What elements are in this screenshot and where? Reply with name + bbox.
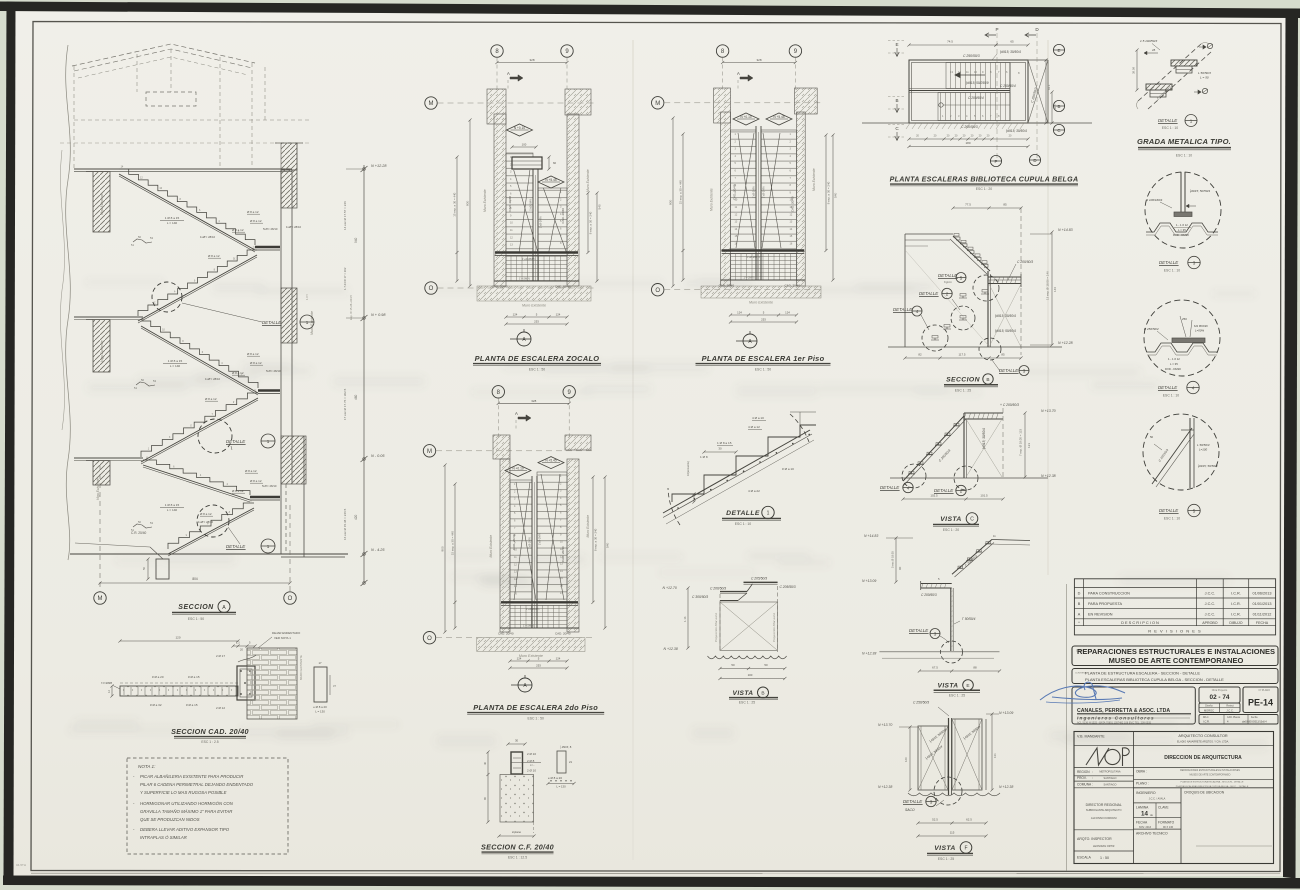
svg-text:L=...: L=... [530,764,535,767]
svg-text:63.1: 63.1 [1047,84,1051,90]
svg-text:5x8'= 28/10: 5x8'= 28/10 [263,227,278,231]
svg-text:Diseño: Diseño [1205,704,1213,707]
svg-text:J.C.C.: J.C.C. [1226,708,1233,712]
svg-text:ESC 1 : 10: ESC 1 : 10 [1163,394,1180,398]
svg-text:1 - 1 # 12: 1 - 1 # 12 [1168,357,1180,361]
svg-text:ESC 1 : 50: ESC 1 : 50 [527,717,544,721]
svg-text:1 Ø 8 a 15: 1 Ø 8 a 15 [165,503,180,507]
svg-text:Ø 8 a 12: Ø 8 a 12 [232,228,244,232]
svg-text:CAD. 20/40: CAD. 20/40 [719,284,735,288]
svg-text:DIRECTOR REGIONAL: DIRECTOR REGIONAL [1086,803,1122,807]
svg-text:L = 35: L = 35 [1170,362,1178,366]
svg-text:J.C.C.: J.C.C. [1205,592,1216,596]
svg-text:# Ø a 32: # Ø a 32 [150,703,162,707]
svg-text:ARQUITECTO CONSULTOR: ARQUITECTO CONSULTOR [1178,734,1228,738]
svg-text:124: 124 [737,311,742,315]
svg-text:ACL 5136 Nº1525 - BATA 70891: ACL 5136 Nº1525 - BATA 70891 1057482 108… [1077,720,1152,724]
svg-text:COMUNA: COMUNA [1077,783,1092,787]
svg-text:DEBERA LLEVAR ADITIVO EXPANSOR: DEBERA LLEVAR ADITIVO EXPANSOR TIPO [140,827,230,832]
svg-text:65: 65 [1010,40,1014,44]
svg-text:R E V I S I O N E S: R E V I S I O N E S [1148,629,1201,634]
svg-text:DIBUJO: DIBUJO [1229,621,1242,625]
svg-text:CAD. 20/40: CAD. 20/40 [791,196,795,212]
svg-text:ESC 1 : 50: ESC 1 : 50 [188,617,205,621]
svg-text:B: B [1078,602,1081,606]
svg-text:1.16: 1.16 [683,616,687,622]
svg-text:1 P.²: 1 P.² [305,294,309,300]
svg-text:├#915; 50/250/9: ├#915; 50/250/9 [965,81,989,85]
svg-text:E: E [895,42,898,47]
svg-text:ESC 1 : 2.5: ESC 1 : 2.5 [201,740,218,744]
svg-text:Ø 8 a 12: Ø 8 a 12 [250,219,262,223]
svg-text:1'+Ø-ØM ½: 1'+Ø-ØM ½ [747,255,761,259]
svg-text:800: 800 [669,200,673,205]
svg-text:M: M [98,596,103,602]
svg-text:# Ø a 15: # Ø a 15 [188,675,200,679]
svg-text:C 250/50/3: C 250/50/3 [913,701,929,705]
svg-text:ESCALA: ESCALA [1077,856,1091,860]
svg-text:540: 540 [606,543,610,548]
svg-text:90: 90 [898,566,902,570]
svg-text:250: 250 [1182,317,1187,321]
svg-text:CROQUIS DE UBICACION: CROQUIS DE UBICACION [1184,791,1225,795]
svg-text:A: A [1078,613,1081,617]
svg-text:SANTIAGO: SANTIAGO [1104,777,1117,780]
svg-text:1'-¹-2M ½: 1'-¹-2M ½ [519,277,531,281]
svg-text:Muro Existente: Muro Existente [586,169,590,192]
svg-text:DETALLE: DETALLE [999,368,1018,373]
svg-text:O: O [429,286,434,292]
svg-text:Ø 8 a 12: Ø 8 a 12 [205,397,217,401]
svg-text:940: 940 [354,237,358,243]
svg-text:├#915; 30/50/4: ├#915; 30/50/4 [999,50,1021,54]
svg-text:DETALLE: DETALLE [1159,508,1178,513]
svg-text:14 esc Ø 17.57 = 246: 14 esc Ø 17.57 = 246 [343,201,347,230]
svg-text:ESC 1 : 20: ESC 1 : 20 [976,187,993,191]
svg-text:ESC 1 : 12.5: ESC 1 : 12.5 [508,856,527,860]
svg-text:43.8: 43.8 [1053,104,1057,110]
svg-text:N +13.09: N +13.09 [862,579,876,583]
svg-text:DXD - DM20: DXD - DM20 [1173,233,1189,237]
svg-text:FECHA: FECHA [1256,621,1269,625]
svg-text:PLANTA DE ESCALERA 2do Pis: PLANTA DE ESCALERA 2do Piso [473,703,598,712]
svg-text:16 esc Ø 15.38 = 246.5: 16 esc Ø 15.38 = 246.5 [343,508,347,540]
svg-text:2 Ø 10: 2 Ø 10 [527,769,536,773]
svg-text:N +0.10: N +0.10 [512,467,523,471]
svg-text:INGENIERO: INGENIERO [1136,791,1156,795]
svg-text:800: 800 [441,546,445,551]
svg-text:4 Ø a 10: 4 Ø a 10 [752,416,764,420]
svg-text:REPARACIONES ESTRUCTURALES E I: REPARACIONES ESTRUCTURALES E INSTALACION… [1077,647,1275,656]
svg-text:38.08: 38.08 [1132,67,1136,74]
svg-text:120: 120 [175,636,180,640]
svg-text:N +13.09: N +13.09 [999,711,1013,715]
svg-text:253: 253 [534,320,539,324]
svg-text:PLANTA ESCALERAS BIBLIOTECA CU: PLANTA ESCALERAS BIBLIOTECA CUPULA BELGA… [1085,677,1224,682]
svg-text:50: 50 [731,663,735,667]
svg-text:L 50/50/3: L 50/50/3 [1197,443,1210,447]
svg-text:Muro Existente: Muro Existente [749,301,773,305]
svg-text:115: 115 [950,831,955,835]
svg-text:C: C [970,517,974,523]
svg-text:01/01/2013: 01/01/2013 [1252,602,1271,606]
svg-text:├#915; 30/50/4: ├#915; 30/50/4 [982,428,986,450]
svg-text:DETALLE: DETALLE [1158,118,1177,123]
svg-text:30: 30 [515,739,519,743]
svg-text:INTRAPLAS Ó SIMILAR: INTRAPLAS Ó SIMILAR [140,835,187,840]
svg-text:SECCION: SECCION [178,604,214,611]
svg-text:N +0.10: N +0.10 [740,115,751,119]
svg-text:124: 124 [785,311,790,315]
svg-text:14: 14 [1141,811,1148,818]
svg-text:VISTA: VISTA [938,683,959,690]
svg-text:DETALLE: DETALLE [226,544,245,549]
svg-text:15 esp. a 30 = 440: 15 esp. a 30 = 440 [679,180,683,204]
svg-text:253: 253 [761,318,766,322]
svg-text:LEONIDAS ORTIZ: LEONIDAS ORTIZ [1093,844,1115,848]
svg-text:L = 140: L = 140 [167,508,178,512]
svg-text:L = 130: L = 130 [556,785,566,789]
svg-text:Γ 50/50/4: Γ 50/50/4 [962,617,976,621]
svg-text:Viga Existente: Viga Existente [96,478,100,500]
svg-text:A: A [737,71,740,76]
svg-text:Ø 8 a 12: Ø 8 a 12 [208,254,220,258]
svg-text:PILAR 6 CADENA PERIMETRAL DEJA: PILAR 6 CADENA PERIMETRAL DEJANDO ENDENT… [140,782,254,787]
svg-text:V.B. MANDANTE: V.B. MANDANTE [1077,735,1105,739]
svg-text:80: 80 [483,796,487,800]
svg-text:C 200/50/4: C 200/50/4 [968,96,984,100]
svg-text:NOTA 1:: NOTA 1: [138,764,156,769]
svg-text:100: 100 [522,143,527,147]
svg-text:J.C.C.: J.C.C. [1205,613,1216,617]
svg-text:N +12.38: N +12.38 [664,647,678,651]
svg-text:1'xØ-2M½: 1'xØ-2M½ [752,186,756,199]
svg-text:DETALLE: DETALLE [880,485,899,490]
svg-text:C 205/50/3: C 205/50/3 [780,585,796,589]
svg-text:VISTA: VISTA [934,845,956,852]
svg-text:CAD. 20/40: CAD. 20/40 [508,196,512,212]
svg-text:NOV. 2013: NOV. 2013 [1139,826,1152,829]
svg-text:PARA PROPUESTA: PARA PROPUESTA [1088,602,1123,606]
svg-text:21: 21 [569,760,573,764]
svg-text:Muro Existente: Muro Existente [586,515,590,538]
svg-text:ESC 1 : 10: ESC 1 : 10 [1162,126,1179,130]
svg-text::: : [1092,770,1093,774]
svg-text:30: 30 [718,447,722,451]
svg-text:1'+Ø-ØM ½: 1'+Ø-ØM ½ [526,607,540,611]
svg-text:P: P [995,27,998,32]
svg-text:ESC 1 : 10: ESC 1 : 10 [1176,154,1193,158]
svg-text:17: 17 [318,661,322,665]
svg-text:ESC 1 : 25: ESC 1 : 25 [949,694,966,698]
svg-text:ESC 1 : 25: ESC 1 : 25 [938,857,955,861]
svg-text:CAD. 20/40: CAD. 20/40 [561,208,565,224]
svg-text:1.7.23 Ø 17 = 302: 1.7.23 Ø 17 = 302 [343,267,347,290]
svg-text:ESC 1 : 50: ESC 1 : 50 [529,368,546,372]
svg-text:DETALLE: DETALLE [934,488,953,493]
svg-text:Viga Existente: Viga Existente [100,340,104,362]
svg-text:2 Ø 10: 2 Ø 10 [527,752,536,756]
svg-text:4 Ø a 22: 4 Ø a 22 [748,489,760,493]
svg-text:N +5.45: N +5.45 [545,178,556,182]
svg-text:180: 180 [965,141,970,145]
svg-text:A: A [515,411,518,416]
svg-text:PLANTA DE ESCALERA ZOCALO: PLANTA DE ESCALERA ZOCALO [475,354,600,363]
svg-text:METROPOLITANA: METROPOLITANA [1099,771,1121,774]
svg-text:PLANO :: PLANO : [1136,782,1149,786]
svg-text:EN REVISION: EN REVISION [1088,613,1113,617]
svg-text:90 X 136: 90 X 136 [1163,826,1174,829]
svg-text:5x8'= 28/10: 5x8'= 28/10 [262,484,277,488]
svg-text:102.5: 102.5 [930,494,938,498]
svg-text:01/06/2013: 01/06/2013 [1252,592,1271,596]
svg-text:D E S C R I P C I O N: D E S C R I P C I O N [1121,620,1159,625]
svg-text:F: F [964,846,967,852]
svg-text:120: 120 [904,757,908,762]
svg-text:Muro Existente: Muro Existente [522,304,546,308]
svg-text:540: 540 [598,204,602,209]
svg-text:HORMIGONAR UTILIZANDO HORMIGÓN: HORMIGONAR UTILIZANDO HORMIGÓN CON [140,801,234,806]
svg-text:Ø 8 a 12: Ø 8 a 12 [232,371,244,375]
svg-text:DIRECCION DE ARQUITECTURA: DIRECCION DE ARQUITECTURA [1164,755,1242,761]
svg-text:ESC 1 : 10: ESC 1 : 10 [1164,517,1181,521]
svg-text:O: O [427,636,432,642]
svg-text:N + 0.98: N + 0.98 [371,313,386,317]
svg-text:VISTA: VISTA [733,690,754,697]
svg-text:├#915; 30/50/4: ├#915; 30/50/4 [994,314,1016,318]
svg-text:ESC 1 : 20: ESC 1 : 20 [943,528,960,532]
svg-text:SUBROGANTE ARQUITECTO: SUBROGANTE ARQUITECTO [1086,808,1122,812]
svg-text:B: B [895,98,898,103]
svg-text:M: M [429,101,434,107]
svg-text:OBRA :: OBRA : [1136,770,1147,774]
svg-text:SACO: SACO [905,808,915,812]
svg-text:540: 540 [834,193,838,198]
svg-text:01/11/2012: 01/11/2012 [1253,613,1272,617]
svg-text:├#915; 30/50/4: ├#915; 30/50/4 [1005,129,1027,133]
svg-text:I.C.R.: I.C.R. [1231,613,1241,617]
svg-text:M1 BOND: M1 BOND [1194,324,1209,328]
svg-text:MUSEO DE ARTE CONTEMPORANEO: MUSEO DE ARTE CONTEMPORANEO [1190,774,1231,777]
svg-text:15 esp. a 30 = 440: 15 esp. a 30 = 440 [451,531,455,555]
svg-text:s/plano: s/plano [512,830,522,834]
svg-text:Muro Existente: Muro Existente [310,311,314,335]
svg-text:N +12.38: N +12.38 [878,785,892,789]
svg-text:ARQTO. INSPECTOR: ARQTO. INSPECTOR [1077,837,1112,841]
svg-text:1'xØ-2M½: 1'xØ-2M½ [539,216,543,229]
svg-text:N - 0.05: N - 0.05 [371,454,385,458]
svg-text:├#915; 50/50/4: ├#915; 50/50/4 [1189,189,1210,193]
svg-text:CLAVE: CLAVE [1158,806,1169,810]
svg-text:e Ø 8 a 20: e Ø 8 a 20 [548,776,562,780]
svg-text:e Ø 8 a 20: e Ø 8 a 20 [313,705,327,709]
svg-text:50: 50 [1150,435,1154,439]
svg-text:DXD - DM20: DXD - DM20 [1165,367,1181,371]
svg-text:Muro Existente: Muro Existente [710,188,714,211]
svg-text:C 200/50/3: C 200/50/3 [710,587,726,591]
svg-text:ESC 1 : 25: ESC 1 : 25 [739,701,756,705]
svg-text:I.C.R.: I.C.R. [1231,592,1241,596]
svg-text:Muro Existente: Muro Existente [812,168,816,191]
svg-text:CAD. Planos: CAD. Planos [1227,716,1241,719]
svg-text:5 esc Ø 18.05: 5 esc Ø 18.05 [891,551,895,568]
svg-text:ESC 1 : 10: ESC 1 : 10 [1164,269,1181,273]
svg-text:124: 124 [556,313,561,317]
svg-text:# Ø a 15: # Ø a 15 [186,703,198,707]
svg-text:├#915; 8: ├#915; 8 [560,745,572,749]
svg-text:DETALLE: DETALLE [1159,260,1178,265]
svg-text:PLANTA ESCALERAS BIBLIOTECA CU: PLANTA ESCALERAS BIBLIOTECA CUPULA BELGA… [1176,785,1249,788]
svg-text:253: 253 [536,664,541,668]
svg-text:131: 131 [993,753,997,758]
svg-text:460: 460 [354,394,358,400]
svg-text:E: E [966,683,969,689]
svg-text:60: 60 [553,161,557,165]
svg-text:50: 50 [142,566,146,570]
svg-text:# Ø a 10: # Ø a 10 [782,467,794,471]
svg-text:1'xØ-2M½: 1'xØ-2M½ [538,532,542,545]
svg-text:A: A [507,71,510,76]
svg-text:77.5: 77.5 [965,203,971,207]
svg-text:124: 124 [556,657,561,661]
svg-text:Ø 8 a 12: Ø 8 a 12 [232,489,244,493]
svg-text:C 205/50/3: C 205/50/3 [751,577,767,581]
svg-text:CAD. 20/40: CAD. 20/40 [492,285,508,289]
svg-text:Ø 8 a 12: Ø 8 a 12 [247,210,259,214]
svg-text:N +12.28: N +12.28 [371,164,387,168]
svg-text:124: 124 [517,657,522,661]
svg-text:QUE SE PRODUZCAN NIDOS: QUE SE PRODUZCAN NIDOS [140,817,200,822]
svg-text:Muro Existente: Muro Existente [483,189,487,212]
svg-text:VER NOTA 1: VER NOTA 1 [274,636,291,640]
svg-text:ESC 1 : 10: ESC 1 : 10 [735,522,752,526]
svg-text:1'xØ-2M½: 1'xØ-2M½ [762,186,766,199]
svg-text:A: A [222,605,226,611]
svg-text:L = 35: L = 35 [1178,228,1186,232]
svg-text:Ø 8 a 12: Ø 8 a 12 [200,512,212,516]
svg-text:328: 328 [531,399,536,403]
svg-text:N +12.28: N +12.28 [1058,341,1073,345]
svg-text:CAD. 20/40: CAD. 20/40 [555,285,571,289]
svg-text:146: 146 [1053,287,1057,292]
svg-text:VISTA: VISTA [940,516,962,523]
svg-text:J.C.C. / AYALA: J.C.C. / AYALA [1149,798,1166,801]
svg-text:PLANTA DE ESCALERA 1er Pis: PLANTA DE ESCALERA 1er Piso [702,354,825,363]
svg-text:SECCION CAD. 20/40: SECCION CAD. 20/40 [171,727,249,736]
svg-text:N +13.70: N +13.70 [1041,409,1056,413]
svg-text:52.5: 52.5 [932,818,938,822]
svg-text:02 - 74: 02 - 74 [1210,694,1230,701]
svg-text:88: 88 [973,666,977,670]
svg-text:PARA CONSTRUCCION: PARA CONSTRUCCION [1088,592,1130,596]
svg-text:Proyeccion Pilar exist.: Proyeccion Pilar exist. [772,612,776,642]
svg-text:M: M [655,101,660,107]
svg-text:DETALLE: DETALLE [938,273,957,278]
svg-text:2 Ø 17: 2 Ø 17 [216,654,225,658]
svg-text:MUSEO DE ARTE CONTEMPORANEO: MUSEO DE ARTE CONTEMPORANEO [1109,656,1244,665]
svg-text:L=50%: L=50% [1195,329,1205,333]
svg-text:7 esp. Ø 18.05 = 123: 7 esp. Ø 18.05 = 123 [1019,429,1023,456]
svg-text:B: B [986,377,989,383]
svg-text:N +12.38: N +12.38 [1041,474,1056,478]
svg-text:ESC 1 : 50: ESC 1 : 50 [755,368,772,372]
svg-text:I.C.R.: I.C.R. [1203,720,1210,724]
svg-text:DETALLE: DETALLE [226,439,245,444]
svg-text:1 Ø 8 a 15: 1 Ø 8 a 15 [717,441,732,445]
svg-text:PE-14: PE-14 [1248,698,1273,708]
svg-text:1 Ø 8: 1 Ø 8 [700,455,708,459]
svg-text:C 300/50/3: C 300/50/3 [692,595,708,599]
svg-text:04-5TH: 04-5TH [16,863,26,867]
svg-text:CAD. 20/40: CAD. 20/40 [498,632,514,636]
svg-text:1 Ø 8 a 15: 1 Ø 8 a 15 [165,216,180,220]
svg-text:C 200/50/3: C 200/50/3 [961,125,978,129]
svg-text:74.5: 74.5 [947,40,953,44]
svg-text:L=100: L=100 [1199,448,1208,452]
svg-text:100: 100 [748,673,753,677]
svg-text:8 esp. a 30 = 240: 8 esp. a 30 = 240 [594,528,598,551]
svg-text:B: B [761,691,764,697]
svg-text:1xØ'= 28/10: 1xØ'= 28/10 [198,520,214,524]
svg-text:Esp. Ø 15.28+344.5: Esp. Ø 15.28+344.5 [349,295,353,320]
svg-text:D: D [1078,592,1081,596]
svg-text:Viga Existente: Viga Existente [100,193,104,215]
svg-text:DEJAR ENDENTADO: DEJAR ENDENTADO [272,631,301,635]
svg-text:R 250/50/2: R 250/50/2 [1144,327,1159,331]
svg-text:1'+Ø-ØM ½: 1'+Ø-ØM ½ [522,257,536,261]
svg-text:DETALLE: DETALLE [262,320,281,325]
svg-text:J.C.C.: J.C.C. [1205,602,1216,606]
svg-text:C 250/50/4: C 250/50/4 [1000,84,1016,88]
svg-text:Ø 8 a 12: Ø 8 a 12 [245,469,257,473]
svg-text:1xØ'= 28/10: 1xØ'= 28/10 [205,377,221,381]
svg-text:Obra Proyecto: Obra Proyecto [1212,689,1228,692]
svg-text:1.3: 1.3 [236,641,240,645]
svg-text:CANALES, PERRETTA & ASOC.: CANALES, PERRETTA & ASOC. LTDA [1077,708,1170,714]
svg-text:I.C.R.: I.C.R. [1231,602,1241,606]
svg-text:C 200/50/3: C 200/50/3 [921,593,937,597]
svg-text:50: 50 [764,663,768,667]
svg-text:L = 140: L = 140 [167,221,178,225]
svg-text:ALFONSO KORDUM: ALFONSO KORDUM [1091,816,1117,820]
svg-text:FECHA: FECHA [1136,821,1148,825]
svg-text:1'xØ-2M½: 1'xØ-2M½ [529,198,533,211]
svg-text:SECCION C.F. 20/40: SECCION C.F. 20/40 [481,843,554,852]
svg-text:LAMINA: LAMINA [1136,806,1149,810]
svg-text:2 Ø 12: 2 Ø 12 [216,706,225,710]
svg-text:Kg/cm: Kg/cm [944,280,953,284]
svg-text:1xØ'= 28/10: 1xØ'= 28/10 [200,235,216,239]
svg-text:N +12.38: N +12.38 [999,785,1013,789]
svg-text:Fecha: Fecha [1251,717,1258,719]
svg-text:8 esp. a 30 = 240: 8 esp. a 30 = 240 [589,211,593,234]
svg-text:PLANTA DE ESTRUCTURA ESCALERA: PLANTA DE ESTRUCTURA ESCALERA - SECCION … [1085,671,1200,676]
svg-text:f'-f=28#8: f'-f=28#8 [101,681,112,685]
svg-text:Ø 8 a 12: Ø 8 a 12 [250,479,262,483]
svg-text:Nº PLANO: Nº PLANO [1259,688,1271,692]
svg-text:ELADIO NAVARRETE ARQTOS. Y CI: ELADIO NAVARRETE ARQTOS. Y CIA. LTDA. [1177,741,1229,744]
svg-text:DETALLE: DETALLE [919,291,938,296]
svg-text:Dib.4: Dib.4 [1203,717,1209,719]
svg-text:CAD. 20/40: CAD. 20/40 [555,632,571,636]
svg-text:1'-¹-2M ½: 1'-¹-2M ½ [523,624,535,628]
svg-text:82: 82 [918,353,922,357]
svg-text:N +12.70: N +12.70 [663,586,677,590]
svg-text:28: 28 [1152,48,1156,52]
svg-text:40: 40 [483,761,487,765]
svg-text:R 100/160/4: R 100/160/4 [1146,198,1163,202]
svg-text:N +14.83: N +14.83 [864,534,878,538]
